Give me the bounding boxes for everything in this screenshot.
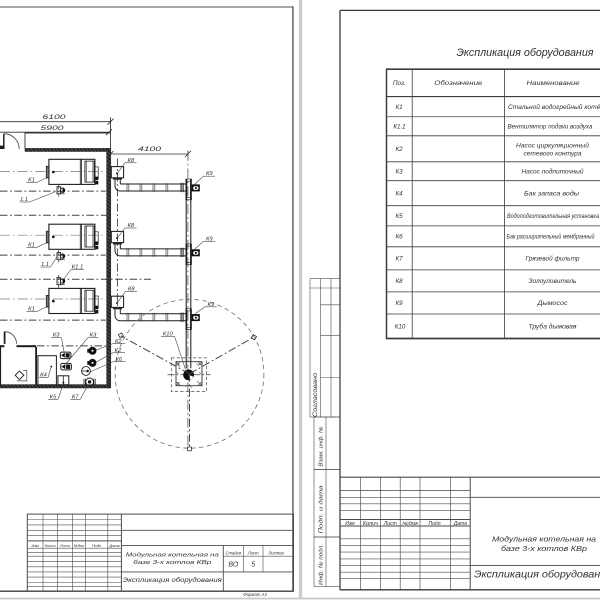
svg-text:Водоподготовительная установка: Водоподготовительная установка [507,214,600,220]
svg-text:К2: К2 [115,339,122,345]
svg-text:Изм: Изм [31,543,39,548]
svg-text:6100: 6100 [43,114,67,121]
svg-text:Колич: Колич [45,543,56,548]
svg-text:К3: К3 [395,168,403,175]
svg-text:К6: К6 [395,234,403,241]
svg-text:К4: К4 [395,190,403,197]
svg-text:Инф. № подл.: Инф. № подл. [318,544,324,585]
svg-text:Вентилятор подачи воздуха: Вентилятор подачи воздуха [508,125,594,131]
svg-text:К1.1: К1.1 [393,124,405,131]
svg-text:Подп.: Подп. [429,521,442,527]
svg-text:К2: К2 [115,348,122,354]
svg-text:Лист: Лист [59,543,71,548]
svg-text:Изм: Изм [345,521,355,527]
svg-text:К8: К8 [395,278,403,285]
svg-text:Взам. инф. №: Взам. инф. № [318,427,324,467]
svg-text:Колич: Колич [363,521,378,527]
svg-text:Наименование: Наименование [527,80,581,87]
svg-text:базе 3-х котлов КВр: базе 3-х котлов КВр [501,544,587,553]
svg-text:Бак расширительный мембранный: Бак расширительный мембранный [507,234,596,241]
svg-text:Золоуловитель: Золоуловитель [529,279,577,285]
svg-text:Насос циркуляционный: Насос циркуляционный [516,143,590,150]
svg-text:сетевого контура: сетевого контура [524,151,583,157]
svg-text:№док: №док [74,543,85,548]
svg-text:Стальной водогрейный котёл: Стальной водогрейный котёл [508,104,600,111]
svg-text:К1: К1 [395,104,402,111]
svg-text:№док: №док [402,521,419,527]
svg-text:Формат А3: Формат А3 [243,592,267,597]
svg-text:Дымосос: Дымосос [536,301,567,307]
svg-text:К10: К10 [395,323,406,330]
svg-text:Поз.: Поз. [393,80,406,87]
svg-text:ВО: ВО [228,562,239,569]
svg-text:Насос подпиточный: Насос подпиточный [522,168,585,175]
svg-text:Экспликация оборудования: Экспликация оборудования [457,47,594,59]
svg-text:Стадия: Стадия [225,551,241,556]
svg-text:Лист: Лист [247,551,259,556]
svg-text:К7: К7 [395,256,403,263]
svg-text:Подп: Подп [92,543,102,548]
svg-text:Грязевой фильтр: Грязевой фильтр [526,256,581,263]
svg-text:5: 5 [251,562,255,569]
svg-text:Дата: Дата [108,543,120,548]
svg-text:К5: К5 [395,213,403,220]
svg-text:Экспликация оборудования: Экспликация оборудования [123,576,223,584]
svg-text:К9: К9 [395,300,403,307]
svg-text:Бак запаса воды: Бак запаса воды [524,191,580,197]
svg-text:Лист: Лист [383,521,397,527]
svg-text:К6: К6 [115,357,122,363]
svg-text:К2: К2 [395,146,403,153]
svg-text:Модульная котельная на: Модульная котельная на [492,535,596,544]
svg-text:Согласовано: Согласовано [313,372,319,417]
svg-text:Труба дымовая: Труба дымовая [529,324,578,330]
svg-text:Дата: Дата [453,521,467,527]
svg-text:базе 3-х котлов КВр: базе 3-х котлов КВр [133,560,211,566]
svg-text:Листов: Листов [267,551,284,556]
svg-text:Обозначение: Обозначение [434,79,483,87]
svg-text:Модульная котельная на: Модульная котельная на [126,553,219,559]
svg-text:Подп. и дата: Подп. и дата [318,486,324,534]
svg-text:5900: 5900 [41,125,65,132]
svg-text:Экспликация оборудования: Экспликация оборудования [474,569,600,581]
svg-text:4100: 4100 [138,146,162,153]
